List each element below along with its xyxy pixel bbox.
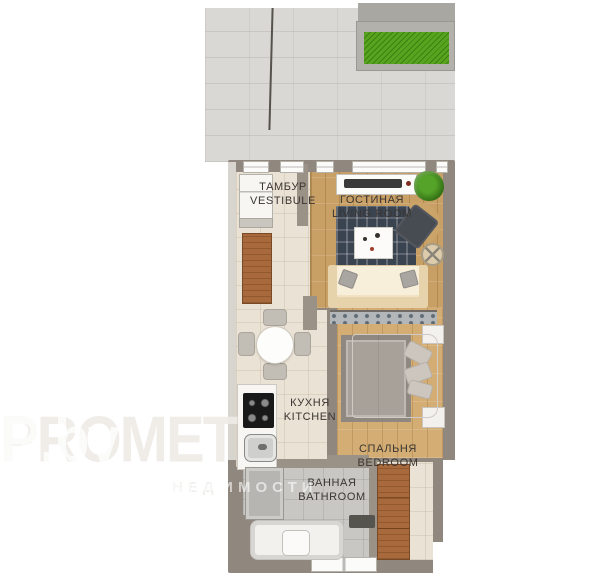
room-label-living-room: ГОСТИНАЯ LIVING ROOM [307,193,437,221]
sofa-backrest [328,297,428,308]
vestibule-wardrobe [242,233,272,304]
window-top-5 [436,161,448,173]
terrace-edge-band [358,3,455,21]
watermark-brand-bright: R.by [0,402,118,477]
floor-plan: ТАМБУР VESTIBULE ГОСТИНАЯ LIVING ROOM КУ… [0,0,609,576]
dining-chair [263,363,287,380]
side-table [421,243,444,266]
window-top-1 [243,161,269,173]
coffee-table-decor [363,237,367,241]
window-top-2 [280,161,304,173]
sofa-armrest [328,265,337,308]
coffee-table-decor [375,233,380,238]
sofa-armrest [419,265,428,308]
window-top-3 [316,161,334,173]
coffee-table [354,227,393,259]
room-label-living-ru: ГОСТИНАЯ [307,193,437,207]
toilet [282,530,310,556]
coffee-table-decor [370,247,374,251]
window-top-4 [352,161,426,173]
room-label-living-en: LIVING ROOM [307,207,437,221]
dining-chair [294,332,311,356]
dining-chair [238,332,255,356]
bath-mat [349,515,375,528]
wall-corner-stub [303,296,317,330]
tv [344,179,402,188]
tv-console-decor [406,181,411,186]
room-label-vestibule-ru: ТАМБУР [237,180,329,194]
console-shelf [330,310,437,324]
outline-cut-bottom-right [433,542,457,576]
watermark-tagline-bright: ВИЖИМОСТИ [172,479,318,496]
grass-lawn [364,32,449,64]
dining-chair [263,309,287,326]
dining-table [256,326,294,364]
vestibule-shelf [239,218,273,228]
